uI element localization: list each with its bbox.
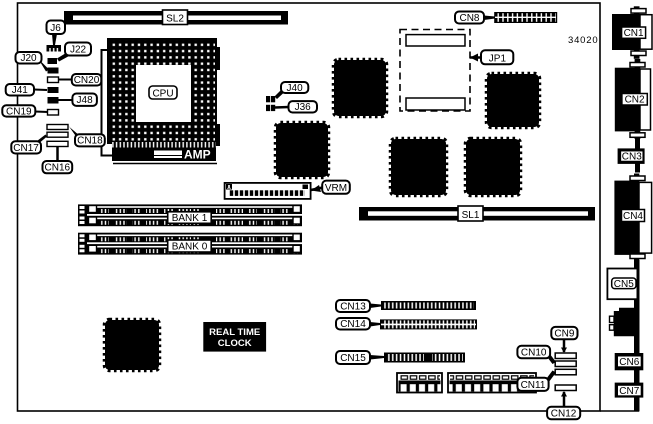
svg-text:SL1: SL1 xyxy=(462,210,480,221)
svg-text:34020: 34020 xyxy=(568,35,598,46)
svg-text:BANK 1: BANK 1 xyxy=(172,213,208,224)
svg-text:CN4: CN4 xyxy=(623,211,643,222)
svg-text:CN11: CN11 xyxy=(521,380,546,391)
svg-text:SL2: SL2 xyxy=(166,14,184,25)
svg-text:CN7: CN7 xyxy=(619,386,639,397)
svg-text:J36: J36 xyxy=(295,102,312,113)
svg-text:CN3: CN3 xyxy=(622,152,642,163)
svg-text:CN14: CN14 xyxy=(340,319,366,330)
svg-text:J20: J20 xyxy=(20,53,37,64)
svg-text:CN17: CN17 xyxy=(13,143,39,154)
svg-text:CN18: CN18 xyxy=(77,136,103,147)
svg-text:J41: J41 xyxy=(12,85,29,96)
svg-text:CN15: CN15 xyxy=(340,353,366,364)
svg-text:CN9: CN9 xyxy=(554,329,574,340)
svg-text:J6: J6 xyxy=(50,23,61,34)
svg-text:CN13: CN13 xyxy=(340,302,366,313)
svg-text:BANK 0: BANK 0 xyxy=(172,242,208,253)
svg-text:CN2: CN2 xyxy=(625,95,645,106)
svg-text:CN1: CN1 xyxy=(624,28,644,39)
svg-text:CN19: CN19 xyxy=(6,106,32,117)
svg-text:CN10: CN10 xyxy=(521,348,547,359)
svg-text:J48: J48 xyxy=(77,95,94,106)
svg-text:REAL TIME: REAL TIME xyxy=(209,327,260,338)
svg-text:CN8: CN8 xyxy=(459,13,479,24)
svg-text:J22: J22 xyxy=(70,45,87,56)
svg-text:VRM: VRM xyxy=(325,183,347,194)
svg-text:CN20: CN20 xyxy=(74,75,100,86)
svg-text:CN16: CN16 xyxy=(45,163,71,174)
svg-text:CN6: CN6 xyxy=(619,357,639,368)
svg-text:CLOCK: CLOCK xyxy=(218,338,252,349)
svg-text:CPU: CPU xyxy=(152,89,173,100)
svg-text:JP1: JP1 xyxy=(489,53,507,64)
svg-text:J40: J40 xyxy=(287,83,304,94)
svg-text:CN12: CN12 xyxy=(551,409,577,420)
svg-text:AMP: AMP xyxy=(184,148,211,162)
svg-text:CN5: CN5 xyxy=(614,279,634,290)
